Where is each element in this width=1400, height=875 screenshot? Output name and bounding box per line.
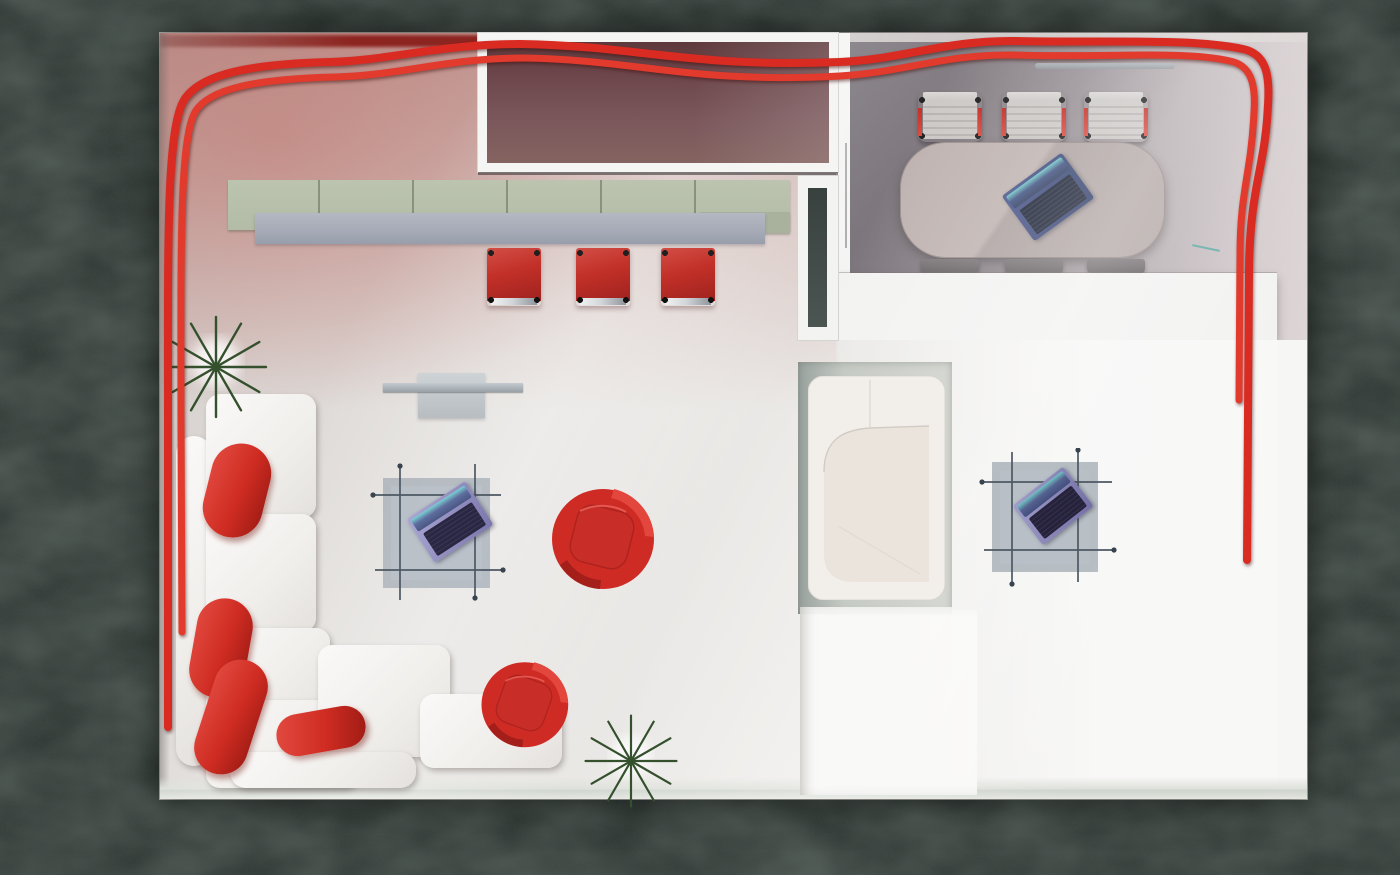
floorplan-render [0, 0, 1400, 875]
red-tube-outline [0, 0, 1400, 875]
